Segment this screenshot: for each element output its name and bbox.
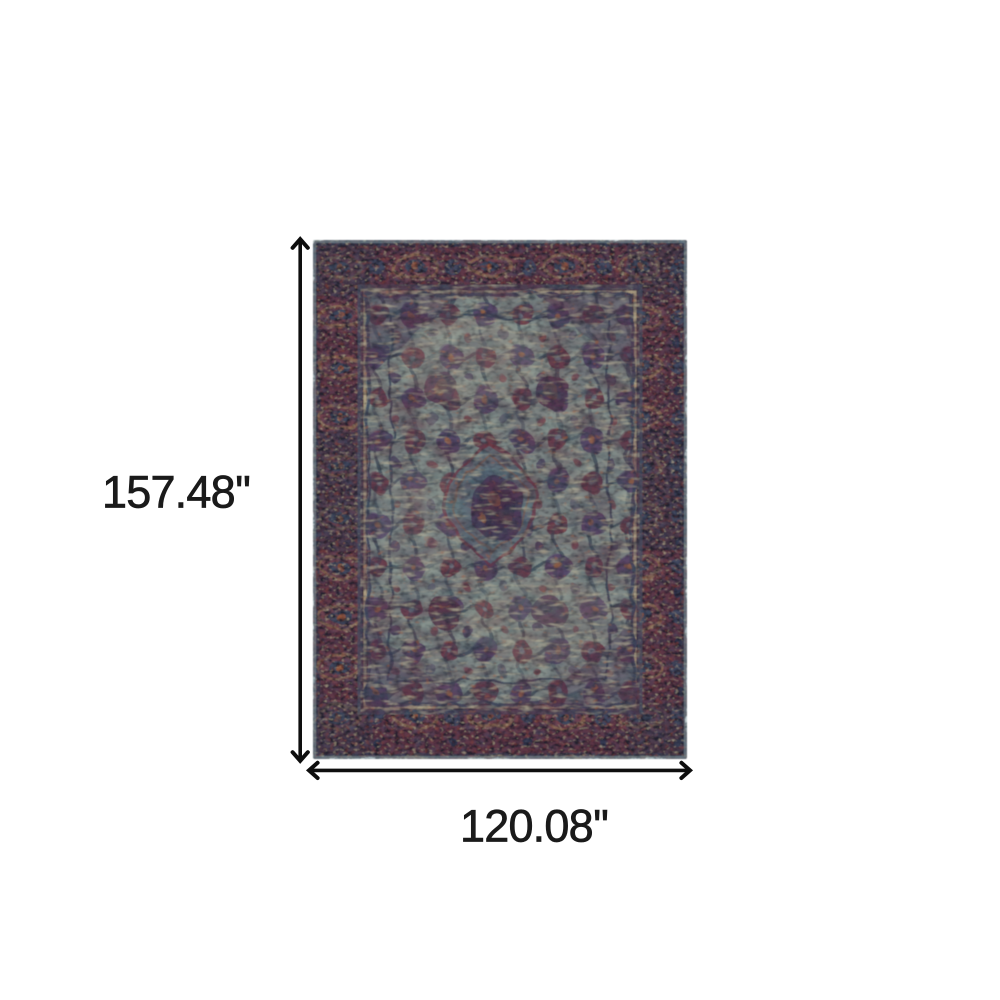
svg-text:120.08'': 120.08'' xyxy=(460,801,608,852)
svg-text:157.48'': 157.48'' xyxy=(102,467,250,518)
